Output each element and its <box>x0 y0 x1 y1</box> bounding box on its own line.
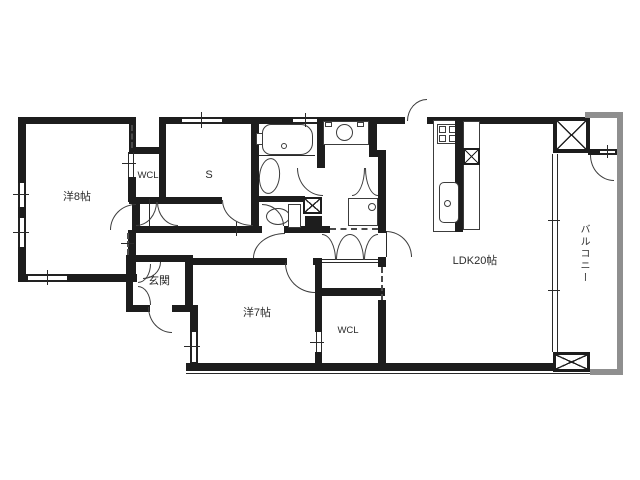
door-arc <box>386 231 412 257</box>
wall <box>126 305 150 312</box>
wall <box>378 157 386 226</box>
closet-door-arc <box>136 202 157 226</box>
window-tick <box>13 232 29 233</box>
washing-machine-faucet <box>368 203 376 211</box>
wall <box>251 196 305 202</box>
stove-burner <box>439 126 446 133</box>
kitchen-shaft <box>463 148 480 165</box>
wall-edge-line <box>186 373 623 374</box>
wall-dashed <box>127 233 129 255</box>
door-arc <box>253 233 285 258</box>
window-tick <box>201 112 202 128</box>
vanity-fitting <box>357 122 364 127</box>
room-label-wcl-north: WCL <box>133 169 163 182</box>
wall <box>132 255 192 262</box>
wall-dashed <box>381 267 383 300</box>
wall <box>378 300 386 370</box>
wall <box>18 207 26 218</box>
closet-door-arc <box>336 234 350 260</box>
bath-floor-line <box>259 155 315 156</box>
wall <box>378 257 386 267</box>
wall <box>129 147 163 154</box>
open-doorway <box>330 228 378 230</box>
wall <box>18 117 26 183</box>
room-label-bedroom8: 洋8帖 <box>49 191 105 204</box>
wall <box>18 117 135 124</box>
room-label-service-room: S <box>200 169 218 182</box>
washing-machine <box>348 198 378 226</box>
wall <box>255 117 293 124</box>
balcony-door-arc <box>590 155 614 181</box>
door-arc <box>285 263 315 293</box>
balcony-rail <box>617 112 623 375</box>
wall <box>190 305 198 332</box>
bathtub-faucet <box>256 133 263 145</box>
window-tick <box>13 194 29 195</box>
wall <box>385 117 405 124</box>
ldk-window <box>557 154 558 352</box>
bathtub <box>262 124 313 155</box>
ldk-window <box>552 154 553 352</box>
window-tick <box>305 113 306 127</box>
closet-door-arc <box>157 202 178 226</box>
closet-door-arc <box>364 234 378 260</box>
bathtub-drain <box>281 143 287 149</box>
window <box>182 117 222 124</box>
wall <box>159 117 166 204</box>
room-label-entrance: 玄関 <box>143 275 175 288</box>
window-tick <box>122 163 136 164</box>
balcony-rail <box>590 369 623 375</box>
floorplan-canvas: 洋8帖 WCL S 玄関 洋7帖 WCL LDK20帖 バルコニー <box>0 0 640 480</box>
window-tick <box>548 220 560 221</box>
pipe-shaft <box>303 197 322 214</box>
window-tick <box>184 346 200 347</box>
shoe-cabinet-door-arc <box>138 286 151 305</box>
closet-door-arc <box>322 234 336 260</box>
stove-burner <box>439 135 446 142</box>
room-label-bedroom7: 洋7帖 <box>229 307 285 320</box>
window-tick <box>607 145 608 158</box>
door-arc <box>222 200 253 226</box>
closet-door-arc <box>350 234 364 260</box>
window <box>190 332 198 362</box>
linen-cabinet-door-arc <box>365 168 378 196</box>
linen-cabinet-door-arc <box>352 168 365 196</box>
window-tick <box>548 290 560 291</box>
window-tick <box>310 342 324 343</box>
wall <box>186 363 590 371</box>
toilet-tank <box>288 204 301 228</box>
wall <box>369 150 386 157</box>
window <box>18 183 26 207</box>
wall <box>126 255 133 312</box>
room-label-wcl-south: WCL <box>333 324 363 337</box>
closet-front <box>322 262 378 263</box>
sliding-door <box>128 152 129 177</box>
pillar-shaft <box>553 117 590 153</box>
vanity-fitting <box>325 122 332 127</box>
wall-dashed <box>131 125 133 148</box>
window-tick <box>47 270 48 285</box>
wall <box>190 258 287 265</box>
door-arc <box>297 168 323 196</box>
wall <box>132 226 262 233</box>
wall <box>378 226 386 233</box>
wall <box>315 288 385 296</box>
pillar-shaft <box>553 352 590 372</box>
door-leaf <box>386 231 387 257</box>
kitchen-cabinet <box>463 121 480 230</box>
washbasin <box>336 124 353 141</box>
wall <box>18 274 28 282</box>
entrance-door-arc <box>148 307 172 333</box>
shaft-box <box>305 216 322 229</box>
wall <box>159 117 182 124</box>
service-door-arc <box>407 99 427 121</box>
bath-wash-area <box>257 157 282 195</box>
sink-drain <box>444 200 451 207</box>
room-label-ldk: LDK20帖 <box>444 255 506 268</box>
door-arc <box>110 204 136 230</box>
room-label-balcony: バルコニー <box>577 216 590 291</box>
window-tick <box>121 243 134 244</box>
window-tick <box>236 222 237 236</box>
